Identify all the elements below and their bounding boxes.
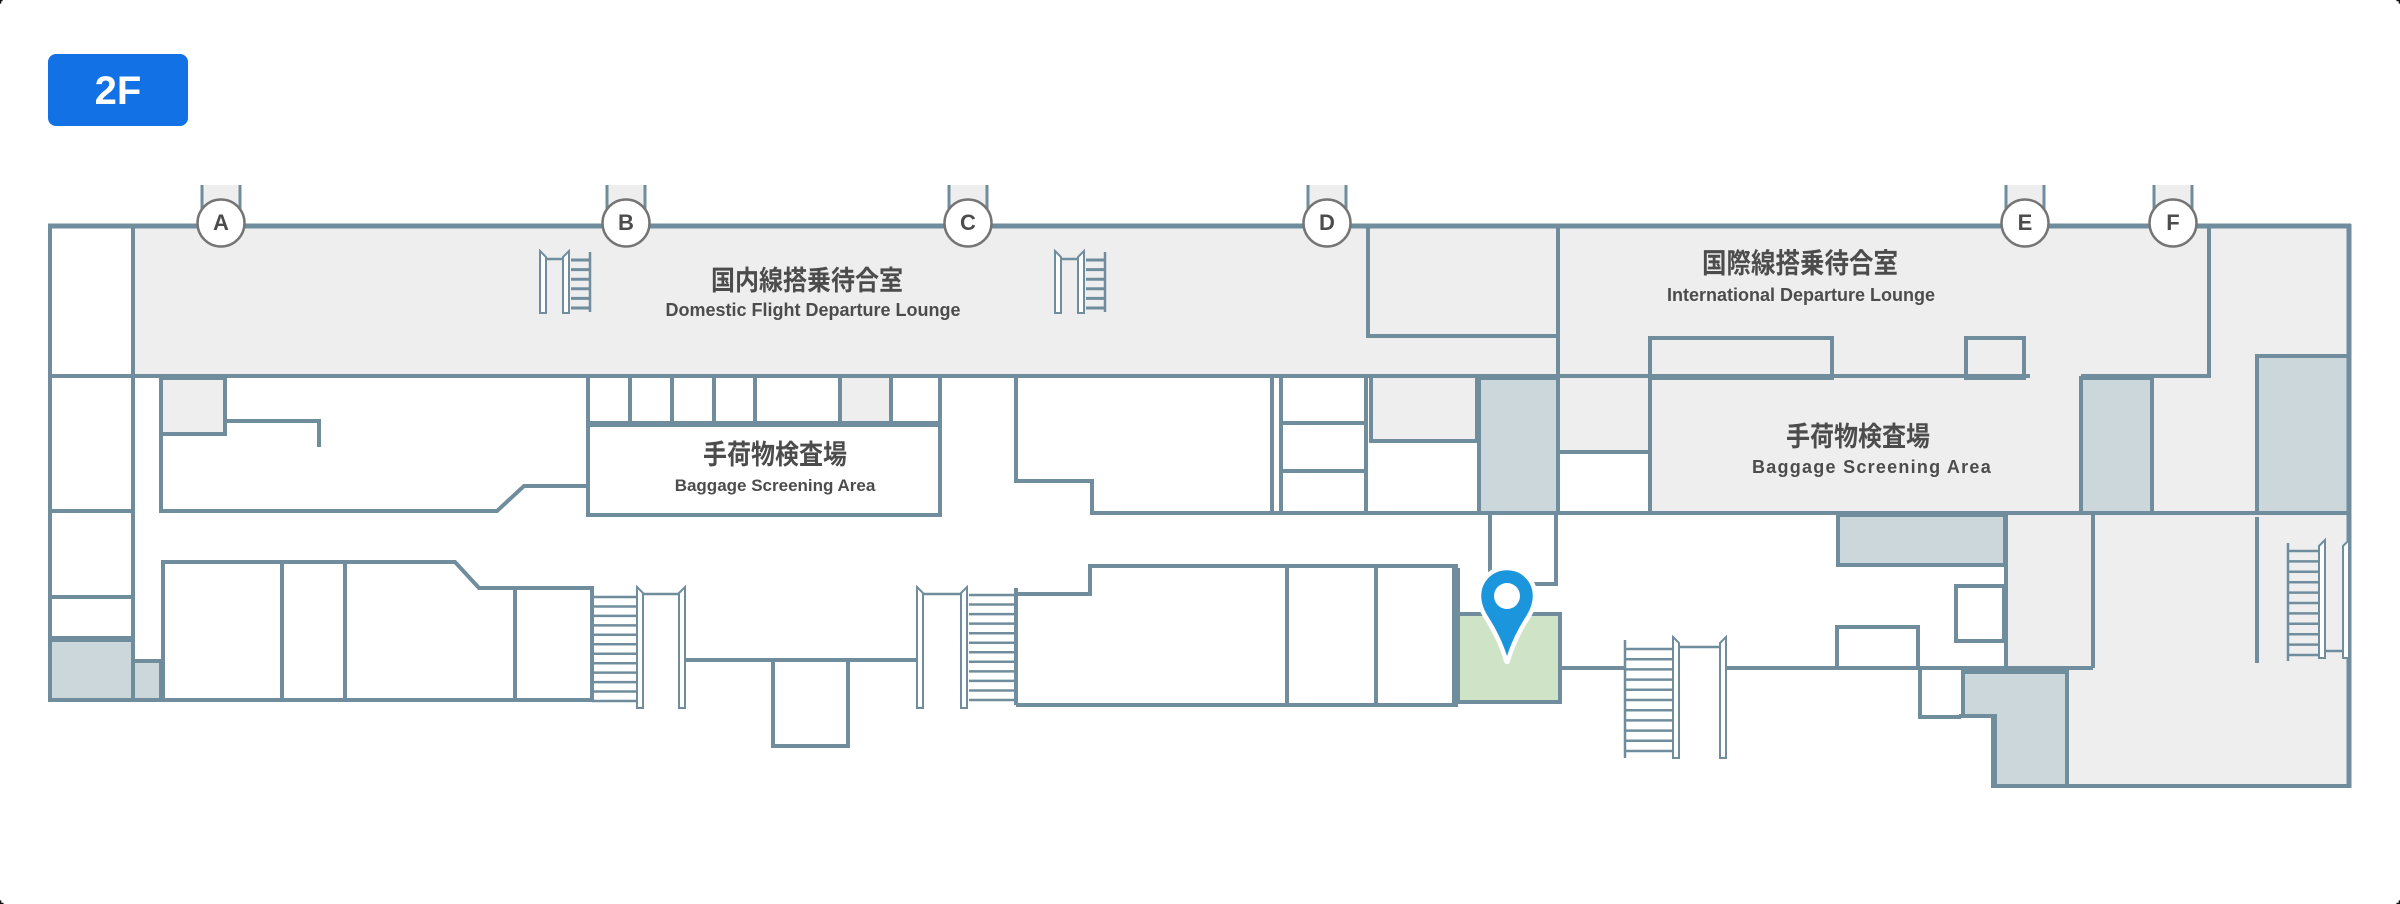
svg-text:Baggage Screening Area: Baggage Screening Area [1752,457,1992,477]
svg-text:D: D [1319,210,1335,235]
svg-text:F: F [2166,210,2179,235]
svg-text:Baggage Screening Area: Baggage Screening Area [675,476,876,495]
svg-text:Domestic Flight Departure Loun: Domestic Flight Departure Lounge [665,300,960,320]
svg-text:C: C [960,210,976,235]
svg-text:A: A [213,210,229,235]
svg-text:E: E [2018,210,2033,235]
svg-text:International Departure Lounge: International Departure Lounge [1667,285,1935,305]
svg-text:2F: 2F [95,69,142,113]
svg-text:B: B [618,210,634,235]
